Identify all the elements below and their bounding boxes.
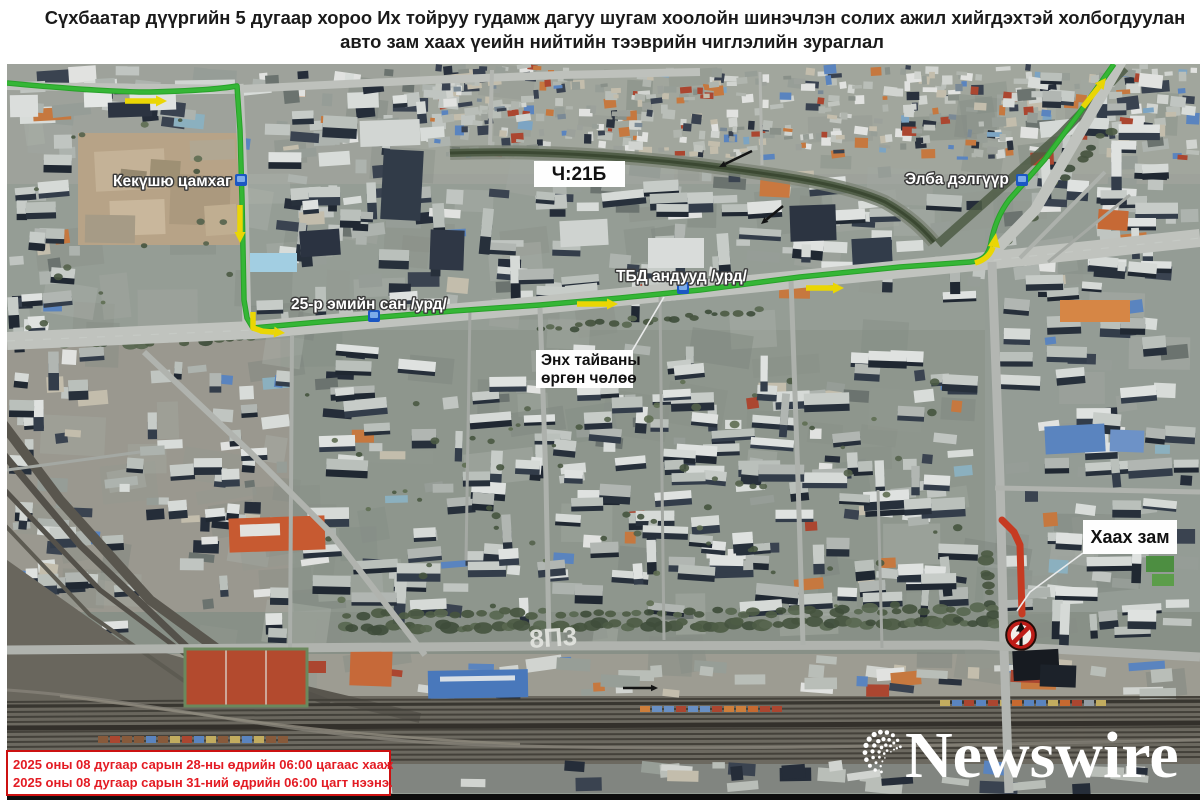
svg-text:ТБД андууд /урд/: ТБД андууд /урд/ bbox=[616, 268, 748, 285]
svg-text:Хаах зам: Хаах зам bbox=[1090, 527, 1169, 547]
svg-text:Сүхбаатар дүүргийн 5 дугаар хо: Сүхбаатар дүүргийн 5 дугаар хороо Их той… bbox=[45, 7, 1185, 28]
svg-text:Элба дэлгүүр: Элба дэлгүүр bbox=[905, 171, 1009, 188]
svg-text:2025 оны 08 дугаар сарын 31-ни: 2025 оны 08 дугаар сарын 31-ний өдрийн 0… bbox=[13, 775, 393, 790]
svg-text:өргөн чөлөө: өргөн чөлөө bbox=[541, 370, 637, 387]
svg-text:авто зам хаах үеийн нийтийн тэ: авто зам хаах үеийн нийтийн тээврийн чиг… bbox=[340, 31, 884, 52]
svg-text:Ч:21Б: Ч:21Б bbox=[552, 164, 606, 185]
svg-text:Кекүшю цамхаг: Кекүшю цамхаг bbox=[113, 173, 232, 190]
svg-text:Энх тайваны: Энх тайваны bbox=[541, 352, 641, 369]
svg-text:Newswire: Newswire bbox=[905, 719, 1179, 792]
svg-text:25-р эмийн сан /урд/: 25-р эмийн сан /урд/ bbox=[291, 296, 447, 313]
svg-text:2025 оны 08 дугаар сарын 28-ны: 2025 оны 08 дугаар сарын 28-ны өдрийн 06… bbox=[13, 757, 394, 772]
